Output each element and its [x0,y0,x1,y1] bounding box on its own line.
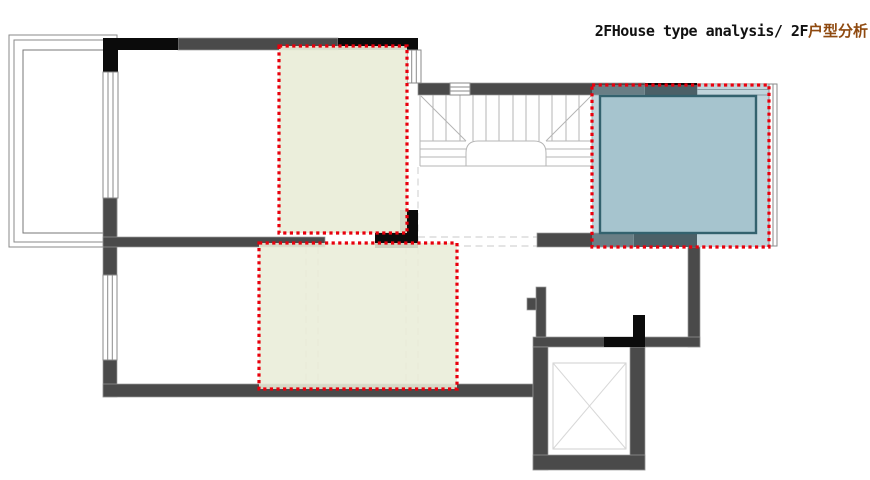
floor-plan-drawing [0,0,870,480]
highlight-region-upper-green [279,46,407,233]
floor-plan-canvas: 2FHouse type analysis/ 2F户型分析 [0,0,870,480]
balcony-window-frames [9,35,117,247]
page-title: 2FHouse type analysis/ 2F户型分析 [595,20,868,41]
elevator-x-symbol [553,363,626,449]
highlight-region-blue [592,85,769,247]
page-title-en: 2FHouse type analysis/ 2F [595,22,808,40]
highlight-region-lower-green [259,243,457,389]
page-title-zh: 户型分析 [808,22,868,40]
staircase [420,95,592,166]
